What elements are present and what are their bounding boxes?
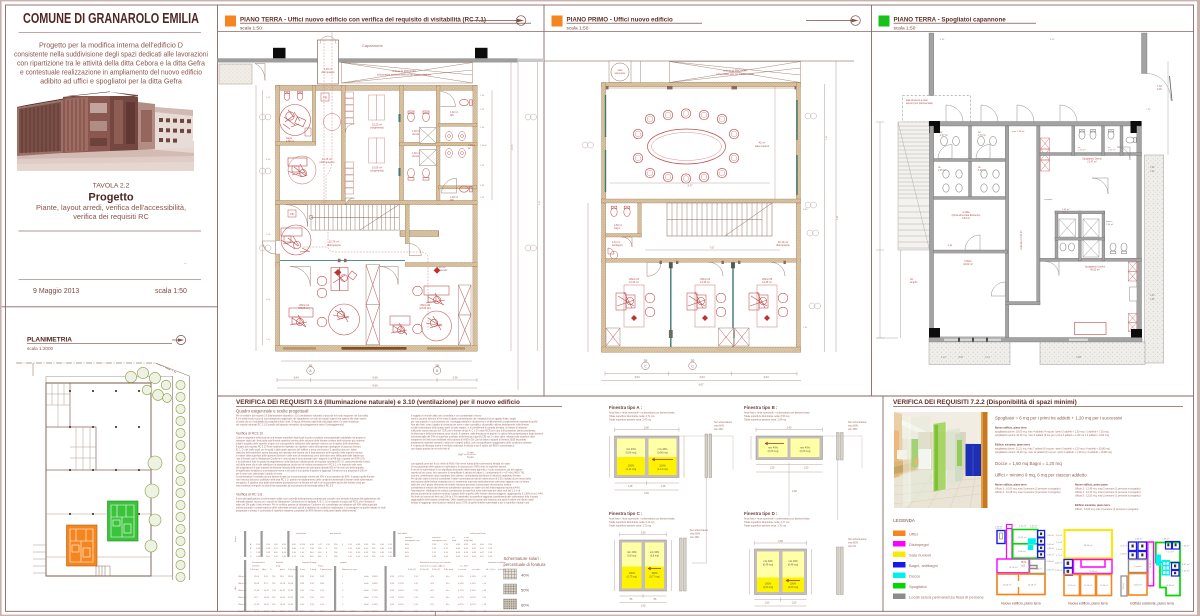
- svg-text:+4%: +4%: [430, 590, 434, 592]
- svg-text:1,20 m²: 1,20 m²: [1078, 149, 1086, 152]
- svg-text:delle arie con il giusto rifer: delle arie con il giusto riferimento al …: [411, 484, 512, 487]
- svg-text:il fatto: il fatto: [318, 565, 324, 568]
- svg-text:5,05%: 5,05%: [398, 611, 404, 613]
- svg-text:C: C: [691, 364, 694, 368]
- svg-text:2,70 m²: 2,70 m²: [1108, 149, 1116, 152]
- svg-text:con ripartizione tra le attivi: con ripartizione tra le attività della d…: [17, 59, 205, 68]
- svg-text:energetico. Il significa tutto: energetico. Il significa tutto dalla sch…: [236, 482, 365, 485]
- svg-text:12,10 m²: 12,10 m²: [1084, 584, 1092, 587]
- svg-text:1,50: 1,50: [765, 602, 770, 605]
- svg-text:10,85 m²: 10,85 m²: [1149, 559, 1152, 568]
- svg-text:doccia: doccia: [1106, 221, 1113, 223]
- svg-text:2,18 m²: 2,18 m²: [1047, 569, 1055, 572]
- svg-text:Bagni, antibagni: Bagni, antibagni: [909, 563, 938, 568]
- svg-text:(0,8 mq): (0,8 mq): [627, 555, 636, 558]
- svg-text:dati edilizi: dati edilizi: [398, 532, 407, 535]
- svg-text:C: C: [644, 364, 647, 368]
- svg-text:ciascuno della superficie aper: ciascuno della superficie aperta (faccia…: [236, 452, 363, 455]
- svg-text:consistente nella suddivisione: consistente nella suddivisione degli spa…: [14, 50, 208, 59]
- svg-text:3,64: 3,64: [634, 375, 640, 379]
- svg-text:7 mensa: 7 mensa: [1134, 566, 1143, 568]
- svg-text:adibito ad uffici e spogliatoi: adibito ad uffici e spogliatoi per la di…: [40, 77, 182, 86]
- svg-text:materiali adottati, oscuro con: materiali adottati, oscuro con i carichi…: [236, 501, 375, 504]
- svg-text:(mq): (mq): [276, 566, 280, 568]
- svg-text:8,07 m²: 8,07 m²: [1182, 563, 1190, 566]
- svg-text:1,56%: 1,56%: [372, 604, 378, 606]
- svg-text:Per le verifiche dei requisiti: Per le verifiche dei requisiti 3.6 (Illu…: [236, 415, 369, 418]
- svg-text:dis.: dis.: [910, 279, 914, 281]
- svg-text:i tipi di finestre con la Valu: i tipi di finestre con la Valutazione Co…: [236, 458, 365, 461]
- svg-text:VERIFICA DEI REQUISITI 3.6 (Il: VERIFICA DEI REQUISITI 3.6 (Illuminazion…: [236, 399, 520, 406]
- svg-text:2,90: 2,90: [1157, 88, 1162, 91]
- svg-text:scala 1:2000: scala 1:2000: [27, 346, 53, 351]
- svg-text:VsF =: VsF =: [458, 453, 466, 457]
- svg-text:Ufficio 05: Ufficio 05: [238, 604, 247, 606]
- svg-text:di ordito che si è soddisfatto: di ordito che si è soddisfatto la congru…: [236, 421, 359, 424]
- svg-text:2,07 m²: 2,07 m²: [940, 134, 948, 137]
- svg-text:0,27%: 0,27%: [458, 597, 464, 599]
- svg-text:giorni: giorni: [280, 569, 285, 571]
- svg-text:8,36 m²: 8,36 m²: [1018, 550, 1026, 553]
- svg-text:altezza (ponendo la riduzione: altezza (ponendo la riduzione minima) il…: [411, 493, 543, 496]
- svg-text:H(m): H(m): [262, 569, 267, 571]
- svg-text:Finestra tipo A :: Finestra tipo A :: [609, 405, 643, 410]
- svg-text:S vetr: S vetr: [467, 451, 474, 455]
- svg-text:23,06: 23,06: [288, 583, 294, 585]
- svg-text:0,90: 0,90: [1150, 299, 1155, 301]
- svg-text:(1,11 mq): (1,11 mq): [626, 468, 637, 471]
- svg-text:Nei limiti del norma dei limit: Nei limiti del norma dei limiti da 2,5% …: [411, 496, 539, 499]
- svg-text:Verifi: Verifi: [364, 576, 369, 578]
- svg-text:B, C, D i tipi (nelle quali, p: B, C, D i tipi (nelle quali, per le qual…: [236, 449, 357, 452]
- svg-text:il soggetto si intende dalla n: il soggetto si intende dalla non control…: [411, 415, 482, 418]
- svg-text:0,77%: 0,77%: [458, 590, 464, 592]
- svg-text:di significativo limitativo di: di significativo limitativo di una situa…: [236, 470, 367, 473]
- svg-text:14,82 m²: 14,82 m²: [1166, 584, 1175, 587]
- svg-text:9,19%: 9,19%: [470, 590, 476, 592]
- svg-text:doccia: doccia: [412, 155, 420, 158]
- svg-text:3,36: 3,36: [452, 376, 458, 380]
- svg-text:12,45 m²: 12,45 m²: [762, 281, 772, 284]
- svg-text:(0,46 mq): (0,46 mq): [763, 564, 773, 567]
- svg-text:(23,05 m²): (23,05 m²): [298, 307, 310, 310]
- svg-text:Totale superficie aerante nett: Totale superficie aerante netta: 2,70 mq: [744, 525, 787, 528]
- svg-text:1,88%: 1,88%: [340, 611, 346, 613]
- svg-text:schermatura riposizionamento p: schermatura riposizionamento per movimen…: [377, 74, 432, 77]
- svg-text:min 40%: min 40%: [788, 560, 798, 563]
- svg-text:Verifi: Verifi: [364, 597, 369, 599]
- svg-text:non riescono dal punto codific: non riescono dal punto codificato nella …: [236, 479, 373, 482]
- svg-text:per i più prossimi, in cui pro: per i più prossimi, in cui prossima ove …: [411, 421, 539, 424]
- svg-text:100%: 100%: [790, 583, 797, 586]
- svg-text:min 40%: min 40%: [627, 551, 637, 554]
- svg-text:trasparenti dei limiti sono re: trasparenti dei limiti sono realizzati n…: [411, 439, 526, 442]
- svg-text:9,07%: 9,07%: [470, 604, 476, 606]
- svg-text:rispetto al loro conto, ha e p: rispetto al loro conto, ha e permette di…: [411, 472, 525, 475]
- svg-text:Locali senza permanenza fissa: Locali senza permanenza fissa di persone: [909, 594, 984, 599]
- svg-text:2,05 m²: 2,05 m²: [938, 169, 946, 172]
- svg-text:Totale superficie aerante nett: Totale superficie aerante netta: 2,47 mq: [609, 419, 652, 422]
- svg-text:FB: FB: [290, 212, 294, 216]
- svg-text:23,05: 23,05: [254, 576, 260, 578]
- svg-text:Ufficio 5 : 12,50 mq, max 2 pe: Ufficio 5 : 12,50 mq, max 2 persone (1 p…: [1075, 495, 1141, 498]
- svg-text:Ufficio 04: Ufficio 04: [238, 597, 247, 599]
- svg-text:40 c: 40 c: [446, 604, 450, 606]
- svg-text:dei progettazioni di ogni mass: dei progettazioni di ogni massetti la di…: [236, 467, 364, 470]
- svg-text:min 40%: min 40%: [690, 536, 700, 539]
- svg-text:1,48 m²: 1,48 m²: [1047, 547, 1055, 550]
- svg-text:1,94 m²: 1,94 m²: [1182, 545, 1190, 548]
- svg-text:(calcolo): (calcolo): [498, 569, 506, 571]
- svg-text:2,6 m²: 2,6 m²: [1056, 534, 1062, 537]
- svg-text:Nuovo edificio, primo piano: Nuovo edificio, primo piano: [1075, 484, 1108, 487]
- svg-text:progettuale e privacy e confro: progettuale e privacy e confrontato il s…: [236, 510, 357, 513]
- svg-text:scala 1:50: scala 1:50: [155, 288, 187, 295]
- svg-text:1,56%: 1,56%: [372, 590, 378, 592]
- svg-text:4,80 m²: 4,80 m²: [286, 140, 294, 143]
- svg-text:12,09: 12,09: [288, 597, 294, 599]
- svg-text:7,12 m²: 7,12 m²: [1166, 551, 1174, 554]
- svg-text:1,28: 1,28: [628, 485, 633, 488]
- svg-text:(1,03 mq): (1,03 mq): [763, 586, 773, 589]
- svg-text:1,4 m²: 1,4 m²: [1056, 548, 1062, 551]
- svg-text:40,02 m²: 40,02 m²: [1090, 269, 1100, 272]
- svg-text:100%: 100%: [629, 572, 636, 575]
- svg-text:1,64%: 1,64%: [398, 590, 404, 592]
- svg-text:40 c: 40 c: [446, 576, 450, 578]
- svg-text:1,97%: 1,97%: [398, 576, 404, 578]
- svg-text:Spogliatoi: Spogliatoi: [909, 584, 927, 589]
- svg-text:12,46: 12,46: [288, 590, 294, 592]
- svg-text:superficie: superficie: [432, 537, 441, 539]
- svg-text:Normativa tecnica per una corr: Normativa tecnica per una corretta: [420, 561, 452, 564]
- svg-text:21,47 m²: 21,47 m²: [1087, 161, 1097, 164]
- svg-text:3,64: 3,64: [293, 376, 299, 380]
- svg-text:40 c: 40 c: [446, 583, 450, 585]
- svg-text:1,88%: 1,88%: [330, 611, 336, 613]
- svg-text:5,27%: 5,27%: [372, 611, 378, 613]
- svg-text:Per gli altri valori di venti: Per gli altri valori di venti al conside…: [411, 478, 532, 481]
- svg-text:23,05: 23,05: [288, 576, 294, 578]
- svg-text:La schermatura è costituita da: La schermatura è costituita da una lamie…: [236, 476, 375, 479]
- svg-text:Il quarto del requisito RC 3.1: Il quarto del requisito RC 3.10 Porte to…: [236, 446, 362, 449]
- svg-text:dei requisiti volontari RC 3.1: dei requisiti volontari RC 3.1 (Controll…: [236, 424, 345, 427]
- svg-text:40%: 40%: [405, 556, 409, 558]
- svg-text:e contestuale realizzazione in: e contestuale realizzazione in ampliamen…: [20, 68, 202, 77]
- svg-text:0,90: 0,90: [1150, 295, 1155, 297]
- svg-text:WC: WC: [450, 199, 454, 202]
- svg-text:9 Maggio 2013: 9 Maggio 2013: [33, 288, 79, 295]
- svg-text:2,60: 2,60: [644, 426, 649, 429]
- svg-text:(segreteria): (segreteria): [370, 126, 383, 130]
- svg-text:nell della ansia che in tale t: nell della ansia che in tale tabella per…: [236, 464, 363, 467]
- svg-text:(0,96 mq): (0,96 mq): [626, 452, 637, 455]
- svg-text:Disimpegni: Disimpegni: [909, 542, 929, 547]
- svg-text:immaginato, mq: immaginato, mq: [432, 539, 446, 542]
- svg-text:1,78 m²: 1,78 m²: [1047, 554, 1055, 557]
- svg-text:Ufficio : 14,62 mq, max 2 pers: Ufficio : 14,62 mq, max 2 persone (2 per…: [1075, 508, 1138, 511]
- svg-text:1,44 m²: 1,44 m²: [1062, 208, 1070, 211]
- svg-text:1,88%: 1,88%: [350, 611, 356, 613]
- svg-text:50%: 50%: [521, 588, 529, 593]
- svg-text:1,50: 1,50: [804, 467, 809, 470]
- svg-text:4,30: 4,30: [958, 355, 964, 359]
- svg-text:Ufficio 2 : 10,28 mq, max 3 pe: Ufficio 2 : 10,28 mq, max 3 persone (2 p…: [995, 491, 1061, 494]
- svg-text:Schermature solari :: Schermature solari :: [504, 556, 541, 561]
- svg-text:percentuale di foratura: percentuale di foratura: [504, 562, 547, 567]
- svg-text:e la richiesta di tutte le qua: e la richiesta di tutte le quanto la pro…: [236, 461, 371, 464]
- svg-text:9,07%: 9,07%: [470, 611, 476, 613]
- svg-text:9,14%: 9,14%: [470, 576, 476, 578]
- svg-text:4,88: 4,88: [1076, 355, 1082, 359]
- svg-text:3,64: 3,64: [699, 375, 705, 379]
- svg-text:17,06 m²: 17,06 m²: [1089, 570, 1098, 573]
- svg-text:termini, accanto inferiore al: termini, accanto inferiore al livr entro…: [411, 418, 516, 421]
- svg-text:1,10: 1,10: [985, 355, 991, 359]
- svg-text:16,50: 16,50: [280, 604, 286, 606]
- svg-text:1,19 m²: 1,19 m²: [995, 526, 1003, 529]
- svg-text:9,14%: 9,14%: [470, 583, 476, 585]
- svg-text:FB: FB: [323, 96, 327, 100]
- svg-text:verifica dei requisiti RC: verifica dei requisiti RC: [73, 212, 149, 221]
- svg-text:1,44 m²: 1,44 m²: [1106, 223, 1114, 226]
- svg-text:2,40: 2,40: [787, 426, 792, 429]
- svg-text:di mq considerati delle quanto: di mq considerati delle quanto si usufru…: [411, 466, 507, 469]
- svg-text:uffici: uffici: [235, 586, 237, 590]
- svg-text:(0,26 mq): (0,26 mq): [800, 450, 811, 453]
- svg-text:0,98 m²: 0,98 m²: [1135, 538, 1143, 541]
- svg-text:S pav: S pav: [467, 455, 474, 459]
- svg-text:9,67: 9,67: [698, 383, 704, 387]
- svg-text:1,05%: 1,05%: [398, 604, 404, 606]
- svg-text:0,14%: 0,14%: [458, 583, 464, 585]
- svg-text:TAVOLA 2.2: TAVOLA 2.2: [93, 183, 130, 190]
- svg-text:40%: 40%: [405, 552, 409, 554]
- svg-text:S Pav (m): S Pav (m): [250, 569, 259, 571]
- svg-text:Ufficio 01: Ufficio 01: [238, 576, 247, 578]
- svg-text:finestre: finestre: [234, 536, 237, 542]
- svg-text:bagni: bagni: [614, 227, 620, 230]
- svg-text:scala 1:50: scala 1:50: [567, 26, 589, 32]
- svg-text:2,00 m²: 2,00 m²: [1047, 534, 1055, 537]
- svg-text:corridoio: corridoio: [1044, 198, 1053, 201]
- svg-text:Edificio esistente, piano terr: Edificio esistente, piano terra: [1130, 602, 1174, 606]
- svg-text:Infatti il requisito delle su: Infatti il requisito delle superfici si …: [236, 443, 360, 446]
- svg-text:100%: 100%: [651, 572, 658, 575]
- svg-text:2,60: 2,60: [778, 540, 783, 543]
- svg-text:1,90: 1,90: [641, 605, 646, 608]
- svg-text:s. var: s. var: [464, 537, 469, 539]
- svg-text:2,60: 2,60: [792, 490, 797, 493]
- svg-text:+2%: +2%: [430, 576, 434, 578]
- svg-text:0,87%: 0,87%: [458, 604, 464, 606]
- svg-text:S req: S req: [300, 569, 305, 571]
- svg-text:PIANO PRIMO - Uffici nuovo edi: PIANO PRIMO - Uffici nuovo edificio: [567, 17, 673, 24]
- svg-text:una condizioni energetici va: una condizioni energetici va diventi ha …: [236, 485, 334, 488]
- svg-text:1,40 m²: 1,40 m²: [1047, 543, 1055, 546]
- svg-text:12,45: 12,45: [288, 604, 294, 606]
- svg-text:1,40 m²: 1,40 m²: [1019, 525, 1027, 528]
- svg-text:0,87%: 0,87%: [458, 611, 464, 613]
- svg-text:Uffici: Uffici: [909, 531, 918, 536]
- svg-text:sala riunioni: sala riunioni: [755, 144, 770, 148]
- svg-text:S (mq): S (mq): [310, 569, 316, 571]
- svg-text:4,03 m²: 4,03 m²: [1122, 582, 1125, 589]
- svg-text:Non altri limiti, visto il qua: Non altri limiti, visto il quadro di chi…: [411, 424, 530, 427]
- svg-text:ed alle schermature delle quat: ed alle schermature delle quattro porte …: [411, 427, 528, 430]
- svg-text:12,46 m²: 12,46 m²: [1100, 584, 1108, 587]
- svg-text:14,07: 14,07: [264, 604, 270, 606]
- svg-text:tettoia di PROLON: tettoia di PROLON: [723, 69, 746, 73]
- svg-text:Ufficio 02: Ufficio 02: [238, 583, 247, 585]
- svg-text:Capannone: Capannone: [362, 43, 383, 48]
- svg-text:Verifi: Verifi: [364, 583, 369, 585]
- svg-text:R Es (mq): R Es (mq): [444, 569, 453, 571]
- svg-text:(1,03 mq): (1,03 mq): [788, 586, 798, 589]
- svg-text:Verifi: Verifi: [364, 590, 369, 592]
- svg-text:48,07: 48,07: [280, 611, 286, 613]
- svg-text:R Che (2): R Che (2): [420, 569, 429, 571]
- svg-text:Totale superficie aerante nett: Totale superficie aerante netta: 1,04 mq: [744, 419, 787, 422]
- svg-text:1,50: 1,50: [770, 467, 775, 470]
- svg-text:1,63 m²: 1,63 m²: [1182, 570, 1190, 573]
- svg-text:min 40%: min 40%: [763, 560, 773, 563]
- svg-text:spogliatoio uomini: 16,02 mq,: spogliatoio uomini: 16,02 mq, max 12 add…: [995, 451, 1112, 454]
- svg-text:schermabile solo per manutenzi: schermabile solo per manutenzione: [716, 73, 754, 76]
- svg-text:(disimpegno): (disimpegno): [320, 160, 335, 164]
- svg-text:1,7 m²: 1,7 m²: [1056, 554, 1062, 557]
- svg-text:1,27%: 1,27%: [372, 597, 378, 599]
- svg-text:0,14%: 0,14%: [458, 576, 464, 578]
- svg-text:requisiti: requisiti: [276, 561, 283, 564]
- svg-text:0,94 m²: 0,94 m²: [1047, 560, 1055, 563]
- svg-text:ambienti: ambienti: [252, 565, 260, 568]
- svg-text:10,32 m²: 10,32 m²: [1018, 536, 1027, 539]
- svg-text:7,67: 7,67: [710, 247, 715, 250]
- svg-text:Nuovo edificio, piano terra: Nuovo edificio, piano terra: [1068, 602, 1108, 606]
- svg-text:min 40%: min 40%: [658, 448, 669, 451]
- svg-text:Il però dell applicazione di s: Il però dell applicazione di schermature…: [236, 498, 381, 501]
- svg-text:aperto (non pavimentata): aperto (non pavimentata): [906, 102, 933, 105]
- svg-text:scala 1:50: scala 1:50: [240, 26, 262, 32]
- svg-text:16,56: 16,56: [280, 583, 286, 585]
- svg-text:schermati dalla del 50% di sup: schermati dalla del 50% di superficie co…: [411, 436, 536, 439]
- svg-text:valutazione: valutazione: [296, 532, 307, 535]
- svg-text:VERIFICA DEI REQUISITI 7.2.2 (: VERIFICA DEI REQUISITI 7.2.2 (Disponibil…: [893, 399, 1077, 406]
- svg-text:(mq) (dm): (mq) (dm): [464, 540, 473, 542]
- svg-text:per il metro così ottimizzato: per il metro così ottimizzato il quadro …: [236, 473, 283, 476]
- svg-text:(0,77 mq): (0,77 mq): [627, 576, 637, 579]
- svg-text:39,47: 39,47: [264, 611, 270, 613]
- svg-text:9,77: 9,77: [687, 184, 693, 188]
- svg-text:2,60: 2,60: [644, 492, 649, 495]
- svg-text:min 40%: min 40%: [650, 551, 660, 554]
- svg-text:doccia: doccia: [412, 133, 420, 136]
- svg-text:Totale superficie aerante nett: Totale superficie aerante netta: 1,71 mq: [609, 525, 652, 528]
- svg-text:Nuovo edificio, piano terra: Nuovo edificio, piano terra: [1001, 602, 1041, 606]
- svg-text:area spessa della finestra in: area spessa della finestra incassata che…: [411, 481, 530, 484]
- svg-text:1,90: 1,90: [641, 531, 646, 534]
- svg-text:1,28: 1,28: [661, 485, 666, 488]
- svg-text:PLANIMETRIA: PLANIMETRIA: [27, 337, 72, 344]
- svg-text:singolo: singolo: [910, 282, 918, 284]
- svg-text:Spogliatoi = 6 mq per i primi: Spogliatoi = 6 mq per i primi tre addett…: [995, 416, 1122, 421]
- svg-text:atrio 1,98 m²: atrio 1,98 m²: [1012, 130, 1025, 133]
- svg-text:Verifi: Verifi: [364, 604, 369, 606]
- svg-text:100%: 100%: [765, 583, 772, 586]
- svg-text:s.u.+dim: s.u.+dim: [472, 569, 480, 571]
- svg-text:tettoia di PROLON: tettoia di PROLON: [392, 69, 415, 73]
- svg-text:relazione degli tutti i limit: relazione degli tutti i limiti della sol…: [236, 440, 366, 443]
- svg-text:10,00 m²: 10,00 m²: [1003, 584, 1012, 587]
- svg-text:10,28 m²: 10,28 m²: [1028, 584, 1037, 587]
- svg-text:S Var (2): S Var (2): [408, 569, 416, 571]
- svg-text:40%: 40%: [405, 548, 409, 550]
- svg-text:min 40%: min 40%: [714, 428, 724, 431]
- svg-text:40%: 40%: [405, 544, 409, 546]
- svg-text:min 40%: min 40%: [768, 447, 779, 450]
- svg-text:min 40%: min 40%: [800, 447, 811, 450]
- svg-text:COMUNE DI GRANAROLO EMILIA: COMUNE DI GRANAROLO EMILIA: [23, 11, 199, 27]
- svg-text:23,06: 23,06: [254, 583, 260, 585]
- svg-text:Edificio esistente, piano terr: Edificio esistente, piano terra: [1075, 504, 1110, 507]
- svg-text:9,60: 9,60: [372, 383, 378, 387]
- svg-text:disimpegno: disimpegno: [321, 70, 335, 74]
- svg-text:40 c: 40 c: [446, 590, 450, 592]
- svg-text:12,05 m²: 12,05 m²: [1068, 584, 1076, 587]
- svg-text:1,50: 1,50: [792, 602, 797, 605]
- svg-text:5,60: 5,60: [372, 376, 378, 380]
- svg-text:1,10: 1,10: [941, 355, 947, 359]
- svg-text:raggiungibile della massa cons: raggiungibile della massa considerata. D…: [411, 499, 534, 502]
- svg-text:(23,06 m²): (23,06 m²): [419, 307, 431, 310]
- svg-text:40 c: 40 c: [446, 611, 450, 613]
- svg-text:Finestra tipo D :: Finestra tipo D :: [744, 511, 778, 516]
- svg-text:WC: WC: [450, 114, 454, 117]
- svg-text:S geom (mq): S geom (mq): [320, 569, 332, 571]
- svg-text:la dimensione della schermatur: la dimensione della schermatura come da …: [411, 433, 544, 436]
- svg-text:+2%: +2%: [430, 604, 434, 606]
- svg-text:(segreteria): (segreteria): [370, 169, 383, 173]
- svg-text:100%: 100%: [659, 465, 666, 468]
- svg-text:ampiamente rispettati entrambi: ampiamente rispettati entrambi i valori …: [411, 442, 532, 445]
- svg-text:Nuovo edificio, piano terra: Nuovo edificio, piano terra: [995, 427, 1027, 430]
- svg-text:immaginato, mq: immaginato, mq: [405, 539, 419, 542]
- svg-text:100%: 100%: [628, 465, 635, 468]
- svg-text:(0,77 mq): (0,77 mq): [649, 576, 659, 579]
- svg-text:sufficiente ritorna nota più n: sufficiente ritorna nota più nel TOR, pe…: [411, 430, 536, 433]
- svg-text:Quadro esigenziale e scelte pr: Quadro esigenziale e scelte progettuali: [236, 409, 308, 414]
- svg-text:disimpegno: disimpegno: [776, 243, 790, 247]
- svg-text:42,14: 42,14: [254, 611, 260, 613]
- svg-text:(1,11 mq): (1,11 mq): [657, 468, 668, 471]
- svg-text:2,88%: 2,88%: [372, 583, 378, 585]
- svg-text:(0,26 mq): (0,26 mq): [768, 450, 779, 453]
- svg-text:scala 1:50: scala 1:50: [894, 26, 916, 32]
- svg-text:2x7 m²: 2x7 m²: [1120, 545, 1127, 548]
- svg-text:Sala Riunioni: Sala Riunioni: [238, 611, 250, 613]
- svg-text:Progetto per la modifica inter: Progetto per la modifica interna dell'ed…: [39, 41, 183, 50]
- svg-text:considerata al metodo da rifer: considerata al metodo da riferimento com…: [411, 487, 521, 490]
- svg-text:1,97%: 1,97%: [398, 583, 404, 585]
- svg-text:Il si è infatti tenuto conto: Il si è infatti tenuto conto di una valu…: [236, 418, 367, 421]
- svg-text:apertura: apertura: [405, 536, 413, 539]
- svg-text:uff + (2) hr: uff + (2) hr: [486, 569, 496, 571]
- svg-text:Progetto: Progetto: [88, 192, 134, 204]
- svg-text:PIANO TERRA - Uffici nuovo edi: PIANO TERRA - Uffici nuovo edificio con …: [240, 17, 486, 24]
- svg-text:Finestra tipo C :: Finestra tipo C :: [609, 511, 643, 516]
- svg-text:Uffici = minimo 9 mq, 6 mq per: Uffici = minimo 9 mq, 6 mq per ciascun a…: [995, 473, 1087, 478]
